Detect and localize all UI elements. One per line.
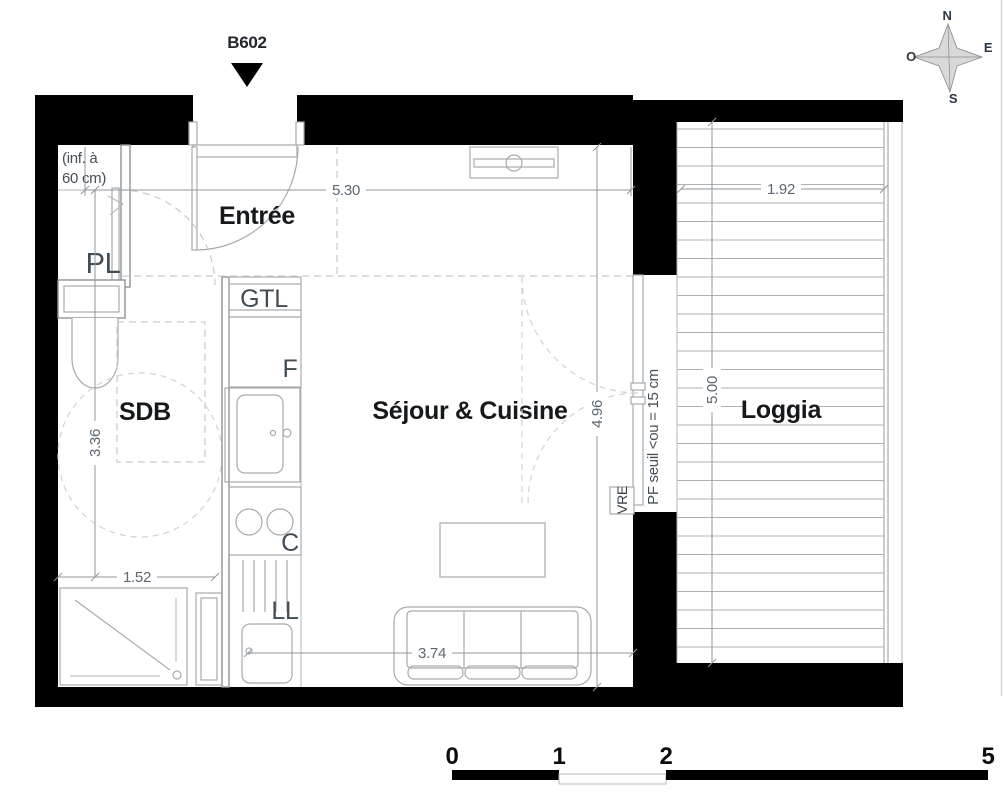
living-area: Entrée Séjour & Cuisine: [122, 147, 662, 685]
scale-seg-2-5: [666, 770, 988, 780]
wall-sejour-loggia-upper: [633, 122, 677, 275]
door-threshold: [193, 145, 297, 157]
bathroom: SDB: [58, 280, 222, 685]
dim-374: 3.74: [418, 645, 446, 662]
compass-rose: N E S O: [906, 8, 993, 106]
sdb-label: SDB: [119, 398, 171, 426]
sdb-door-swing-arc: [119, 190, 215, 285]
window-swing-top: [522, 277, 638, 393]
unit-callout: B602: [227, 33, 266, 87]
dim-530: 5.30: [332, 182, 360, 199]
sdb-door-panel-outer: [196, 593, 222, 685]
pl-label: PL: [86, 248, 121, 280]
unit-number-label: B602: [227, 33, 266, 52]
vre-label: VRE: [614, 486, 630, 514]
scale-seg-1-2: [559, 774, 666, 784]
gtl-label: GTL: [240, 285, 288, 313]
dim-152: 1.52: [123, 569, 151, 586]
scale-0: 0: [445, 743, 458, 770]
scale-seg-0-1: [452, 770, 559, 780]
door-jamb-left: [189, 122, 197, 145]
door-swing-arc: [195, 147, 298, 250]
wall-top-middle: [297, 95, 633, 145]
compass-north-label: N: [942, 8, 951, 23]
wall-loggia-top: [633, 100, 903, 122]
sink-cabinet: [225, 388, 300, 482]
compass-south-label: S: [949, 91, 958, 106]
wall-sejour-loggia-lower: [633, 512, 677, 707]
sejour-label: Séjour & Cuisine: [372, 397, 568, 425]
sink-tap-small: [271, 431, 276, 436]
coffee-table: [440, 523, 545, 577]
shower-diagonal: [75, 600, 170, 670]
dim-192: 1.92: [767, 181, 795, 198]
compass-east-label: E: [984, 40, 993, 55]
cooktop-label: C: [281, 529, 299, 557]
dim-500: 5.00: [704, 376, 721, 404]
compass-west-label: O: [906, 49, 916, 64]
radiator: [470, 147, 558, 178]
wall-bottom: [35, 687, 677, 707]
floor-plan-svg: B602 N E S O (inf. à 60 cm): [0, 0, 1004, 800]
door-jamb-right: [296, 122, 304, 145]
shower-drain: [173, 671, 181, 679]
scale-1: 1: [552, 743, 565, 770]
sink-tap: [283, 429, 291, 437]
wall-top-left: [35, 95, 193, 145]
wall-left: [35, 95, 58, 707]
scale-bar: 0 1 2 5: [445, 743, 994, 784]
kitchenette: GTL F C LL: [222, 277, 301, 687]
low-ceiling-text-1: (inf. à: [62, 150, 98, 167]
fridge-label: F: [283, 355, 298, 383]
floor-plan-page: B602 N E S O (inf. à 60 cm): [0, 0, 1004, 800]
window-stile-bottom: [631, 397, 645, 404]
entrance-door: [189, 122, 304, 250]
wall-loggia-bottom: [677, 663, 903, 707]
burner-left: [236, 509, 262, 535]
dim-496: 4.96: [589, 400, 606, 428]
loggia-label: Loggia: [741, 396, 823, 424]
threshold-note: PF seuil <ou = 15 cm: [645, 369, 662, 505]
pl-partition-wall: [121, 145, 130, 287]
dim-336: 3.36: [87, 429, 104, 457]
sdb-door-panel-inner: [201, 598, 217, 680]
washer-label: LL: [271, 597, 299, 625]
sink-bowl: [237, 395, 283, 473]
door-leaf: [192, 147, 197, 250]
low-ceiling-note: (inf. à 60 cm): [58, 150, 122, 190]
window-stile-top: [631, 383, 645, 390]
scale-2: 2: [659, 743, 672, 770]
entry-arrow-icon: [231, 63, 263, 87]
entree-label: Entrée: [219, 202, 295, 230]
scale-5: 5: [981, 743, 994, 770]
low-ceiling-text-2: 60 cm): [62, 170, 106, 187]
